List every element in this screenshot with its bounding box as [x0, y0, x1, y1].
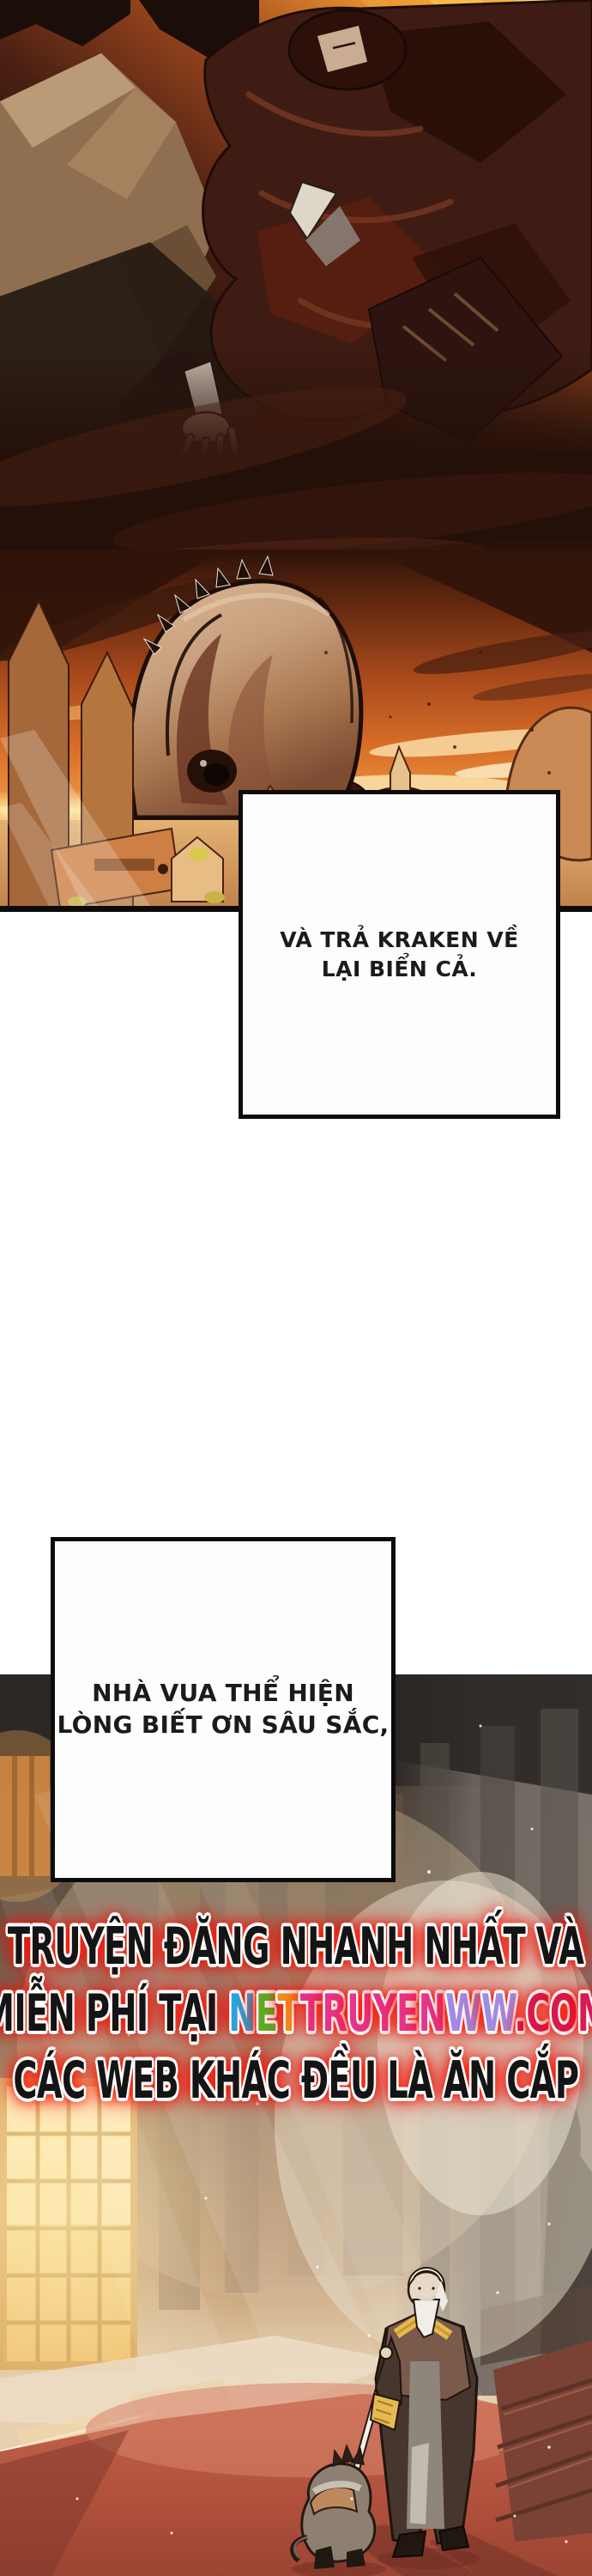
- watermark-site-letter: T: [278, 1984, 300, 2044]
- speech-box-king: NHÀ VUA THỂ HIỆN LÒNG BIẾT ƠN SÂU SẮC,: [51, 1537, 396, 1882]
- boot: [439, 2526, 468, 2550]
- speech-line: LÒNG BIẾT ƠN SÂU SẮC,: [57, 1710, 390, 1741]
- watermark-site-letter: R: [323, 1984, 347, 2044]
- speech-box-kraken: VÀ TRẢ KRAKEN VỀ LẠI BIỂN CẢ.: [239, 790, 560, 1119]
- manhwa-page: VÀ TRẢ KRAKEN VỀ LẠI BIỂN CẢ. NHÀ VUA TH…: [0, 0, 592, 2576]
- speech-line: VÀ TRẢ KRAKEN VỀ: [280, 926, 519, 955]
- watermark-line-2-prefix: MIỄN PHÍ TẠI: [0, 1984, 229, 2044]
- watermark-site-letter: W: [445, 1984, 481, 2044]
- speech-line: LẠI BIỂN CẢ.: [322, 955, 478, 984]
- watermark-site-letter: N: [229, 1984, 257, 2044]
- speech-line: NHÀ VUA THỂ HIỆN: [92, 1678, 354, 1710]
- site-watermark: TRUYỆN ĐĂNG NHANH NHẤT VÀ MIỄN PHÍ TẠI N…: [0, 1913, 592, 2114]
- watermark-site: NETTRUYENWW.COM: [229, 1984, 592, 2044]
- watermark-line-3: CÁC WEB KHÁC ĐỀU LÀ ĂN CẮP: [14, 2047, 579, 2114]
- watermark-site-letter: O: [550, 1984, 577, 2044]
- watermark-site-letter: E: [396, 1984, 419, 2044]
- watermark-site-letter: T: [300, 1984, 323, 2044]
- watermark-line-1: TRUYỆN ĐĂNG NHANH NHẤT VÀ: [8, 1913, 583, 1980]
- watermark-site-letter: E: [256, 1984, 278, 2044]
- watermark-line-2: MIỄN PHÍ TẠI NETTRUYENWW.COM: [0, 1980, 592, 2047]
- watermark-site-letter: Y: [373, 1984, 396, 2044]
- watermark-site-letter: M: [577, 1984, 592, 2044]
- watermark-site-letter: C: [527, 1984, 551, 2044]
- watermark-site-letter: U: [347, 1984, 374, 2044]
- panel-battlefield-art: [0, 0, 592, 912]
- watermark-site-letter: .: [515, 1984, 527, 2044]
- watermark-site-letter: N: [419, 1984, 445, 2044]
- watermark-site-letter: W: [481, 1984, 515, 2044]
